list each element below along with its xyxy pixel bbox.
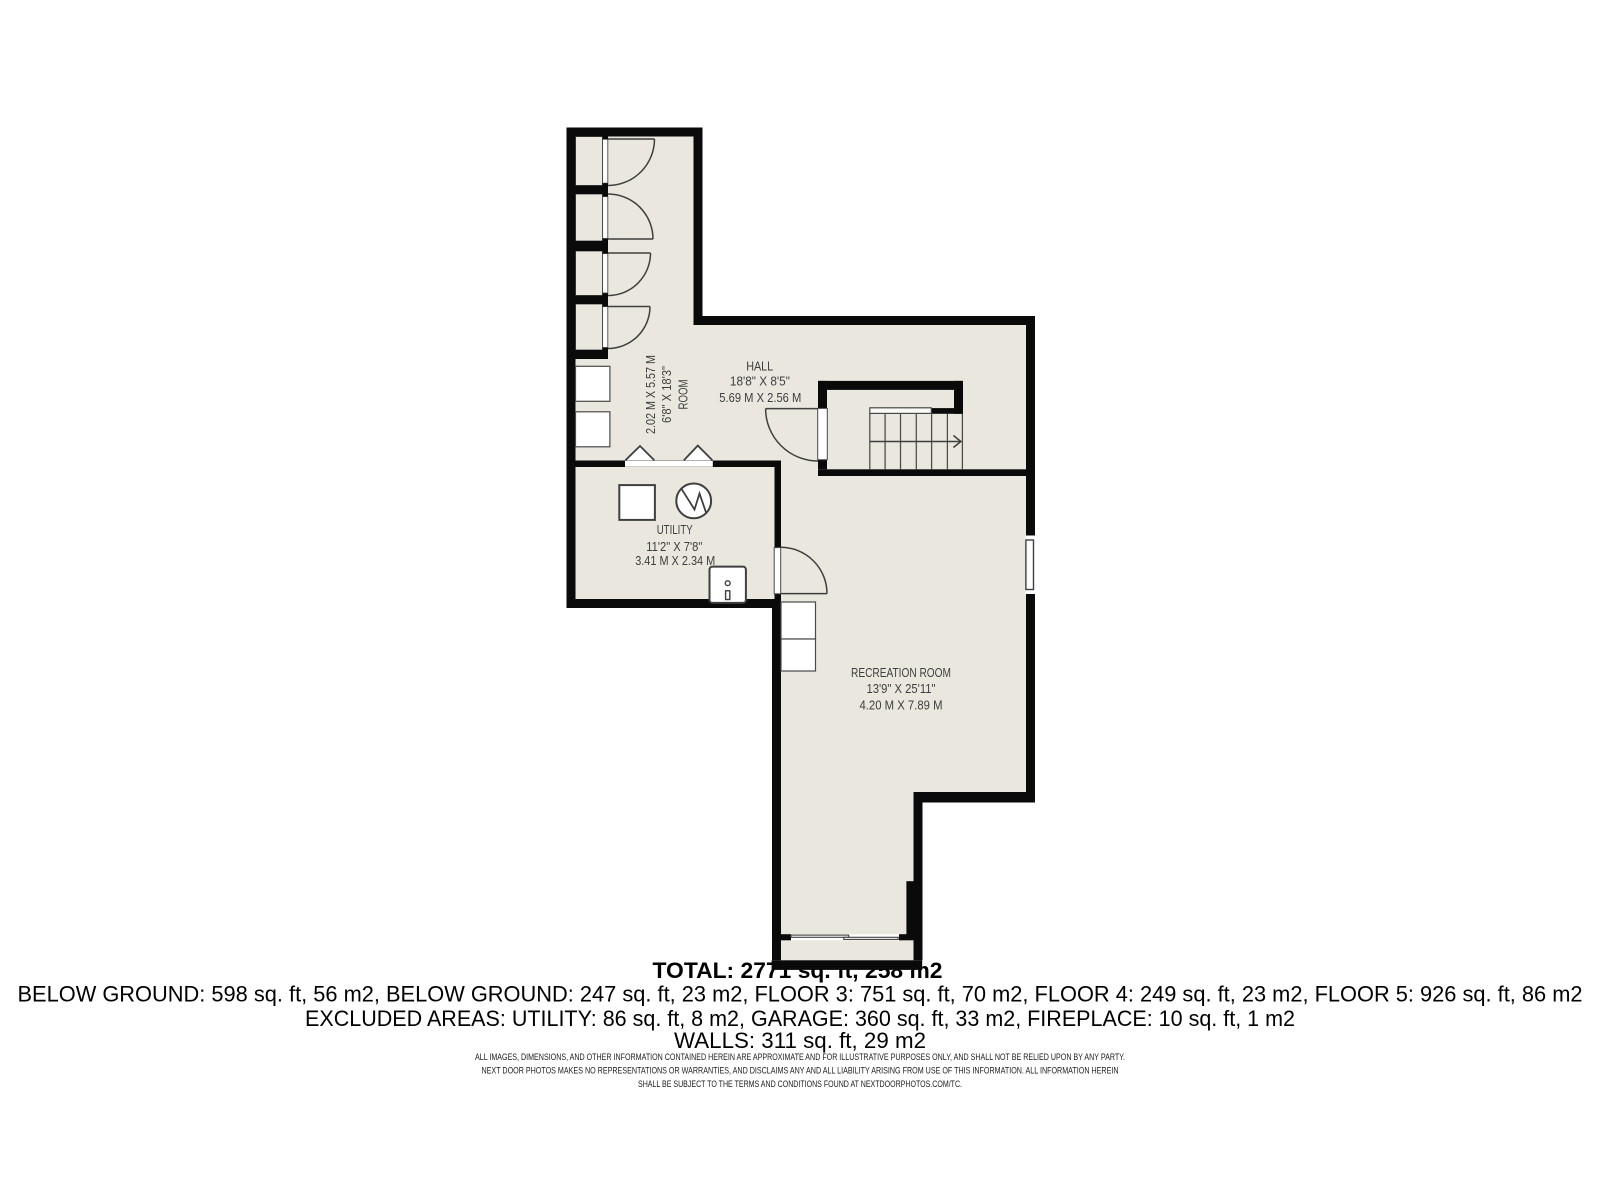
svg-text:ALL IMAGES, DIMENSIONS, AND OT: ALL IMAGES, DIMENSIONS, AND OTHER INFORM… [475,1052,1125,1062]
svg-text:UTILITY: UTILITY [657,522,693,537]
svg-text:2.02 M X 5.57 M: 2.02 M X 5.57 M [643,355,658,434]
svg-text:6'8" X 18'3": 6'8" X 18'3" [659,366,674,423]
svg-text:13'9" X 25'11": 13'9" X 25'11" [867,681,936,696]
svg-text:4.20 M X 7.89 M: 4.20 M X 7.89 M [860,698,943,713]
svg-text:BELOW GROUND: 598 sq. ft, 56 m: BELOW GROUND: 598 sq. ft, 56 m2, BELOW G… [18,981,1583,1006]
svg-text:11'2" X 7'8": 11'2" X 7'8" [646,539,702,554]
svg-text:NEXT DOOR PHOTOS MAKES NO REPR: NEXT DOOR PHOTOS MAKES NO REPRESENTATION… [482,1065,1119,1075]
svg-text:SHALL BE SUBJECT TO THE TERMS: SHALL BE SUBJECT TO THE TERMS AND CONDIT… [638,1079,962,1089]
svg-text:5.69 M X 2.56 M: 5.69 M X 2.56 M [719,390,801,405]
svg-text:18'8" X 8'5": 18'8" X 8'5" [730,374,790,389]
svg-text:HALL: HALL [746,358,773,373]
svg-text:ROOM: ROOM [676,380,691,410]
svg-text:3.41 M X 2.34 M: 3.41 M X 2.34 M [635,553,715,568]
svg-text:WALLS: 311 sq. ft, 29 m2: WALLS: 311 sq. ft, 29 m2 [674,1028,926,1053]
svg-text:RECREATION ROOM: RECREATION ROOM [851,665,951,680]
